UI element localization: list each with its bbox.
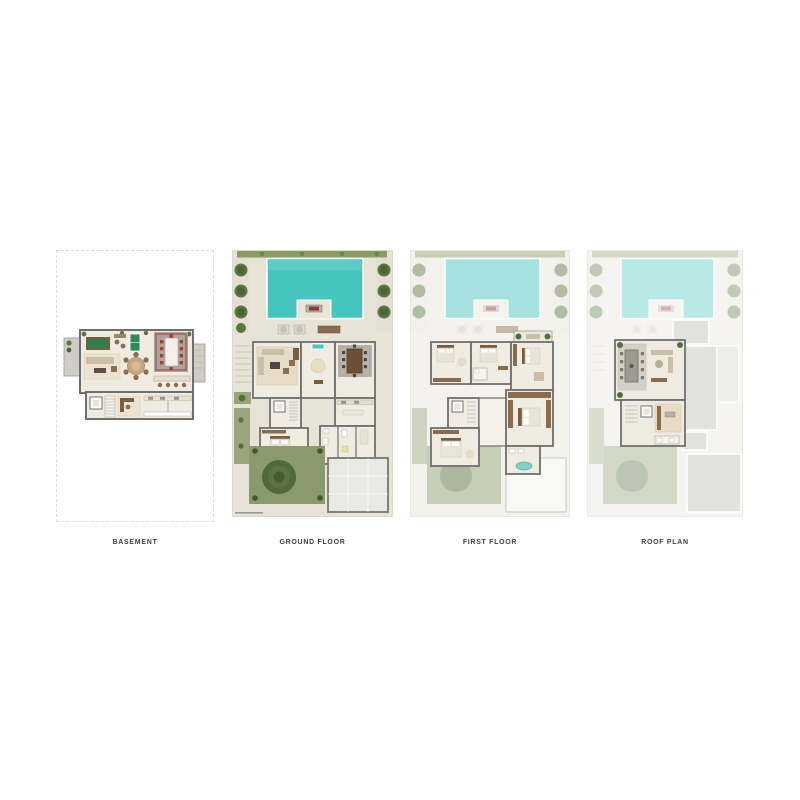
lightwell-left — [64, 338, 81, 376]
basement-floorplan — [56, 250, 214, 522]
rear-lawn — [249, 446, 325, 504]
ground-floorplan — [232, 250, 393, 522]
roof-floorplan — [587, 250, 743, 522]
panel-label-roof: ROOF PLAN — [587, 539, 743, 546]
panel-ground-floor: GROUND FLOOR — [232, 250, 393, 522]
panel-label-basement: BASEMENT — [56, 539, 214, 546]
maid-bed — [360, 430, 368, 444]
lounge-sofa — [651, 350, 673, 355]
games-table — [130, 334, 140, 351]
fire-table — [309, 307, 319, 311]
tree-row-right — [376, 258, 392, 332]
panel-label-ground: GROUND FLOOR — [232, 539, 393, 546]
living-room — [253, 342, 301, 398]
stair-core — [448, 398, 479, 428]
first-floorplan — [410, 250, 570, 522]
water-feature — [312, 344, 324, 349]
roof-terrace — [615, 340, 685, 400]
panel-first-floor: FIRST FLOOR — [410, 250, 570, 522]
wardrobe — [513, 344, 517, 366]
landing — [479, 398, 506, 446]
study-desk — [118, 396, 140, 416]
armchair — [534, 372, 544, 381]
lounge-sofa — [84, 354, 120, 379]
dining-room — [335, 342, 375, 398]
floorplan-sheet: BASEMENT — [0, 0, 800, 800]
kitchen — [335, 398, 375, 426]
balcony — [514, 331, 552, 342]
shower — [342, 446, 348, 452]
outdoor-bench — [318, 326, 340, 333]
bedroom-4 — [431, 428, 479, 466]
swimming-pool — [267, 259, 363, 320]
stair-core — [270, 398, 301, 428]
bathtub — [516, 462, 532, 470]
entry-foyer — [301, 342, 335, 398]
ensuite — [473, 368, 487, 380]
panel-label-first: FIRST FLOOR — [410, 539, 570, 546]
panel-roof-plan: ROOF PLAN — [587, 250, 743, 522]
majlis-dining — [154, 332, 188, 372]
walk-in-closet — [508, 392, 551, 398]
bedroom-2 — [431, 342, 471, 384]
panel-basement: BASEMENT — [56, 250, 214, 522]
wardrobe — [262, 430, 286, 434]
billiard-table — [86, 337, 110, 350]
stairs — [105, 396, 115, 417]
bedroom-1 — [511, 342, 553, 390]
garage — [328, 458, 388, 512]
tree-row-left — [233, 258, 249, 333]
scale-bar — [235, 512, 263, 514]
piano — [293, 348, 299, 360]
wardrobe — [433, 378, 461, 382]
bedroom-3 — [471, 342, 511, 384]
hedge-top — [237, 251, 387, 258]
roof-stair-block — [621, 400, 685, 446]
elevator — [90, 397, 102, 409]
master-bedroom — [506, 390, 553, 446]
tv-console — [651, 378, 667, 382]
master-bathroom — [506, 446, 540, 474]
